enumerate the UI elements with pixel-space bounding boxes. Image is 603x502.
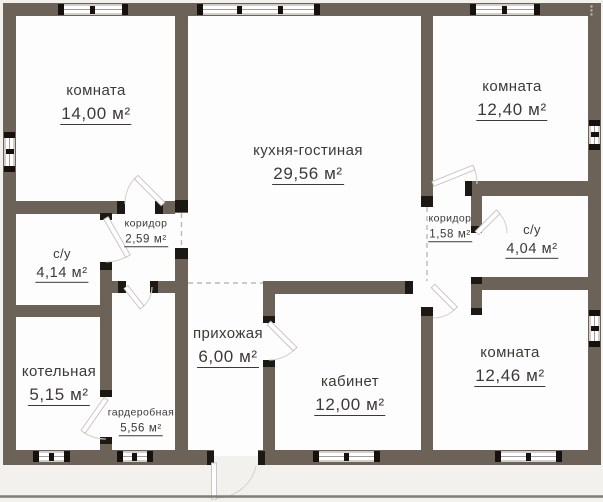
room-name: гардеробная (108, 406, 174, 419)
window-icon (589, 120, 600, 150)
room-name: с/у (505, 222, 558, 238)
room-name: кухня-гостиная (253, 142, 363, 161)
room-label-bathroom-1: с/у 4,14 м² (35, 246, 88, 282)
room-area: 6,00 м² (193, 346, 263, 367)
room-name: прихожая (193, 325, 263, 344)
room-name: котельная (22, 363, 96, 382)
room-name: комната (60, 82, 131, 101)
room-label-bathroom-2: с/у 4,04 м² (505, 222, 558, 258)
room-label-boiler-room: котельная 5,15 м² (22, 363, 96, 405)
room-area: 29,56 м² (253, 163, 363, 184)
window-icon (117, 451, 153, 462)
window-icon (495, 451, 562, 462)
window-icon (58, 4, 128, 15)
room-area: 1,58 м² (428, 227, 472, 241)
room-label-corridor-1: коридор 2,59 м² (124, 217, 168, 247)
window-icon (470, 4, 540, 15)
room-area: 4,14 м² (35, 264, 88, 282)
room-area: 12,00 м² (314, 394, 385, 415)
window-icon (313, 451, 380, 462)
room-area: 2,59 м² (124, 232, 168, 246)
room-label-bedroom-3: комната 12,46 м² (474, 344, 545, 386)
room-label-kitchen-living: кухня-гостиная 29,56 м² (253, 142, 363, 184)
room-label-bedroom-2: комната 12,40 м² (476, 78, 547, 120)
floor-plan: комната 14,00 м² кухня-гостиная 29,56 м²… (0, 0, 603, 502)
room-name: коридор (428, 212, 472, 225)
room-label-corridor-2: коридор 1,58 м² (428, 212, 472, 242)
room-area: 12,40 м² (476, 99, 547, 120)
room-label-hallway: прихожая 6,00 м² (193, 325, 263, 367)
window-icon (589, 310, 600, 347)
window-icon (197, 4, 320, 15)
room-area: 14,00 м² (60, 103, 131, 124)
room-name: коридор (124, 217, 168, 230)
room-name: комната (474, 344, 545, 363)
room-area: 12,46 м² (474, 365, 545, 386)
room-area: 5,15 м² (22, 384, 96, 405)
window-icon (33, 451, 70, 462)
room-name: с/у (35, 246, 88, 262)
more-options-icon[interactable] (590, 5, 592, 15)
room-label-wardrobe: гардеробная 5,56 м² (108, 406, 174, 436)
room-name: кабинет (314, 373, 385, 392)
room-area: 4,04 м² (505, 240, 558, 258)
room-label-study: кабинет 12,00 м² (314, 373, 385, 415)
room-area: 5,56 м² (108, 421, 174, 435)
room-name: комната (476, 78, 547, 97)
window-icon (4, 132, 15, 172)
room-label-bedroom-1: комната 14,00 м² (60, 82, 131, 124)
